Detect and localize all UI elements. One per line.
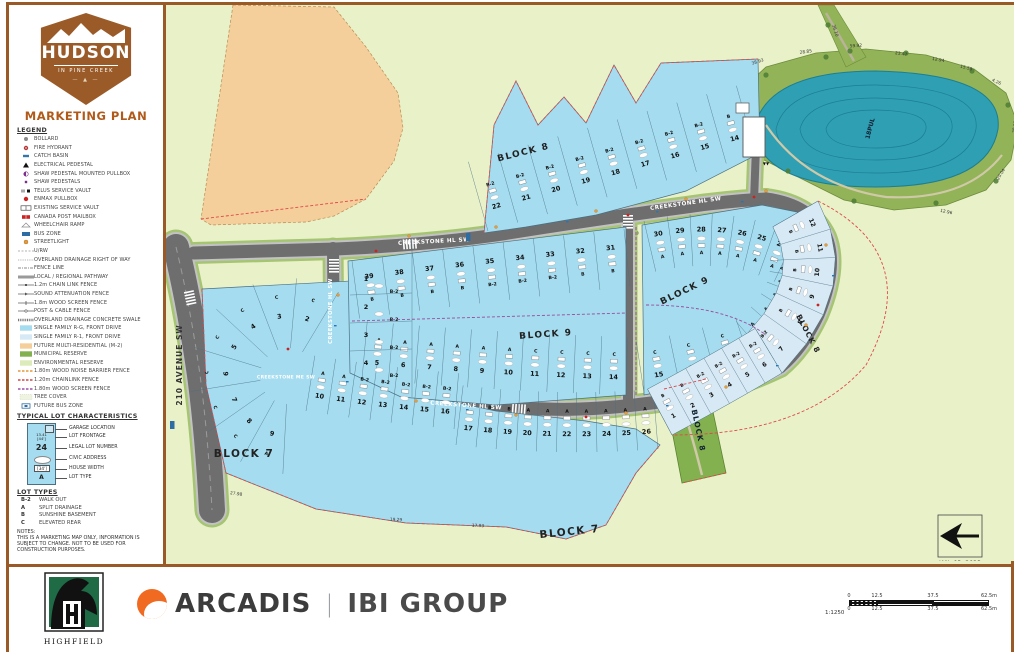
legend-item-label: LOCAL / REGIONAL PATHWAY	[34, 274, 108, 280]
legend-item: OVERLAND DRAINAGE CONCRETE SWALE	[17, 315, 163, 324]
catch-basin-icon	[18, 153, 34, 159]
typical-lot-diagram: 13.41 [44'] 24 [34'] A GARAGE LOCATIONLO…	[23, 422, 163, 486]
legend-item: BUS ZONE	[17, 230, 163, 239]
pathway-icon	[18, 274, 34, 280]
legend-item-label: EXISTING SERVICE VAULT	[34, 205, 99, 211]
typical-lot-heading: TYPICAL LOT CHARACTERISTICS	[17, 413, 163, 420]
svg-text:B-2: B-2	[443, 386, 452, 393]
scale-tick: 0	[847, 593, 850, 599]
legend-item: ELECTRICAL PEDESTAL	[17, 161, 163, 170]
brand-divider: |	[325, 590, 333, 618]
legend-item: CATCH BASIN	[17, 152, 163, 161]
telus-vault-icon	[18, 188, 34, 194]
typical-lot-callout: LOT FRONTAGE	[69, 434, 106, 439]
svg-text:B-2: B-2	[360, 376, 369, 383]
mountains-icon	[47, 21, 125, 43]
post-cable-fence-icon	[18, 308, 34, 314]
shaw-pullbox-icon	[18, 171, 34, 177]
lot-type-row: CELEVATED REAR	[21, 520, 163, 528]
legend-item: TELUS SERVICE VAULT	[17, 187, 163, 196]
streetlight-icon	[18, 239, 34, 245]
svg-text:23: 23	[582, 430, 591, 438]
footer-bar: HIGHFIELD ARCADIS | IBI GROUP 012.537.56…	[9, 564, 1011, 652]
legend-item-label: FIRE HYDRANT	[34, 145, 72, 151]
svg-text:A: A	[565, 409, 569, 415]
logo-title: HUDSON	[37, 43, 135, 63]
scale-tick: 62.5m	[981, 606, 997, 612]
legend-item: 1.2m CHAIN LINK FENCE	[17, 281, 163, 290]
svg-text:19: 19	[503, 427, 513, 436]
house-width-box: [34']	[34, 465, 50, 472]
legend-item-label: 1.80m WOOD NOISE BARRIER FENCE	[34, 368, 130, 374]
logo-est: — ▲ —	[37, 77, 135, 83]
svg-text:B-2: B-2	[422, 384, 431, 391]
svg-text:24: 24	[602, 430, 612, 438]
svg-text:16: 16	[440, 407, 450, 416]
highfield-logo: HIGHFIELD	[39, 571, 109, 647]
swatch-m2	[18, 343, 34, 349]
legend-item: TREE COVER	[17, 393, 163, 402]
svg-text:B-2: B-2	[518, 278, 527, 285]
legend-panel: HUDSON IN PINE CREEK — ▲ — MARKETING PLA…	[9, 5, 166, 564]
scale-tick: 37.5	[927, 593, 938, 599]
overland-drainage-icon	[18, 257, 34, 263]
legend-item: WHEELCHAIR RAMP	[17, 221, 163, 230]
fire-hydrant-icon	[18, 145, 34, 151]
svg-text:14: 14	[609, 373, 619, 381]
svg-text:13: 13	[378, 400, 388, 409]
legend-item-label: SHAW PEDESTALS	[34, 179, 80, 185]
legend-item: SINGLE FAMILY R-1, FRONT DRIVE	[17, 333, 163, 342]
typical-lot-callout: HOUSE WIDTH	[69, 466, 104, 471]
legend-item: OVERLAND DRAINAGE RIGHT OF WAY	[17, 255, 163, 264]
svg-text:7: 7	[427, 363, 432, 371]
svg-text:17.93: 17.93	[472, 523, 485, 529]
legend-item: ENMAX PULLBOX	[17, 195, 163, 204]
typical-lot-callout: LEGAL LOT NUMBER	[69, 445, 118, 450]
legend-item: SOUND ATTENUATION FENCE	[17, 290, 163, 299]
svg-text:210 AVENUE SW: 210 AVENUE SW	[175, 324, 184, 405]
legend-item-label: 1.8m WOOD SCREEN FENCE	[34, 300, 107, 306]
legend-item-label: TREE COVER	[34, 394, 67, 400]
legend-item: BOLLARD	[17, 135, 163, 144]
scale-tick: 0	[847, 606, 850, 612]
wood-screen-fence-icon	[18, 300, 34, 306]
ibi-group-logo: IBI GROUP	[347, 589, 508, 619]
svg-text:25: 25	[622, 429, 632, 437]
legend-item-label: TELUS SERVICE VAULT	[34, 188, 91, 194]
typical-lot-callout: LOT TYPE	[69, 475, 92, 480]
svg-text:10: 10	[504, 368, 514, 377]
logo-tagline: IN PINE CREEK	[54, 65, 118, 74]
scale-tick: 12.5	[871, 606, 882, 612]
legend-item-label: FUTURE MULTI-RESIDENTIAL (M-2)	[34, 343, 122, 349]
legend-item-label: ENVIRONMENTAL RESERVE	[34, 360, 103, 366]
legend-item-label: OVERLAND DRAINAGE CONCRETE SWALE	[34, 317, 141, 323]
wheelchair-ramp-icon	[18, 222, 34, 228]
arcadis-logo: ARCADIS	[175, 589, 311, 619]
wood-screen-180-icon	[18, 386, 34, 392]
noise-barrier-icon	[18, 368, 34, 374]
svg-text:35: 35	[485, 257, 495, 266]
svg-text:4: 4	[364, 359, 369, 367]
legend-item-label: FENCE LINE	[34, 265, 64, 271]
svg-text:A: A	[700, 250, 704, 256]
legend-item: POST & CABLE FENCE	[17, 307, 163, 316]
scale-ticks-bottom: 012.537.562.5m	[827, 606, 997, 613]
fence-line-icon	[18, 265, 34, 271]
enmax-pullbox-icon	[18, 196, 34, 202]
legend-item-label: WHEELCHAIR RAMP	[34, 222, 85, 228]
svg-text:27: 27	[717, 226, 727, 235]
svg-text:B-2: B-2	[381, 379, 390, 386]
chain-link-fence-icon	[18, 282, 34, 288]
arcadis-icon	[137, 589, 167, 619]
lot-number-sample: 24	[28, 443, 55, 452]
legend-item: SINGLE FAMILY R-G, FRONT DRIVE	[17, 324, 163, 333]
svg-text:13: 13	[582, 372, 591, 380]
svg-text:A: A	[585, 409, 589, 415]
legend-item-label: SINGLE FAMILY R-1, FRONT DRIVE	[34, 334, 121, 340]
legend-item-label: ENMAX PULLBOX	[34, 196, 78, 202]
svg-text:B-2: B-2	[390, 345, 399, 351]
svg-text:38: 38	[394, 268, 404, 277]
legend-item: FIRE HYDRANT	[17, 144, 163, 153]
legend-item-label: POST & CABLE FENCE	[34, 308, 90, 314]
lot-types-heading: LOT TYPES	[17, 489, 163, 496]
svg-text:11: 11	[530, 370, 540, 378]
legend-item-label: 1.20m CHAINLINK FENCE	[34, 377, 99, 383]
typical-lot-swatch: 13.41 [44'] 24 [34'] A	[27, 423, 56, 485]
scale-bar: 012.537.562.5m 1:1250 012.537.562.5m	[827, 593, 997, 613]
svg-text:36: 36	[455, 260, 465, 269]
bus-zone-icon	[18, 231, 34, 237]
svg-text:20: 20	[523, 429, 533, 437]
svg-text:CREEKSTONE ME SW: CREEKSTONE ME SW	[257, 375, 315, 381]
legend-item-label: U/RW	[34, 248, 48, 254]
site-plan-map: 18PUL22B-221B-220B-219B-218B-217B-216B-2…	[166, 5, 1014, 561]
legend-item-label: BUS ZONE	[34, 231, 61, 237]
hudson-logo: HUDSON IN PINE CREEK — ▲ —	[37, 13, 135, 105]
notes-heading: NOTES:	[17, 529, 35, 535]
legend-item-label: FUTURE BUS ZONE	[34, 403, 83, 409]
svg-text:12: 12	[357, 398, 367, 407]
svg-text:B-2: B-2	[390, 289, 399, 295]
chainlink-120-icon	[18, 377, 34, 383]
swatch-mr	[18, 351, 34, 357]
bollard-icon	[18, 136, 34, 142]
svg-text:17: 17	[463, 424, 473, 433]
future-bus-icon	[18, 403, 34, 409]
map-area: 18PUL22B-221B-220B-219B-218B-217B-216B-2…	[166, 5, 1011, 564]
tree-cover-icon	[18, 394, 34, 400]
svg-text:21: 21	[542, 430, 552, 438]
legend-item: 1.8m WOOD SCREEN FENCE	[17, 298, 163, 307]
legend-item: U/RW	[17, 247, 163, 256]
svg-text:10: 10	[314, 391, 325, 400]
svg-text:14: 14	[399, 403, 409, 412]
legend-item-label: BOLLARD	[34, 136, 58, 142]
legend-item: 1.80m WOOD SCREEN FENCE	[17, 384, 163, 393]
typical-lot-callout: GARAGE LOCATION	[69, 426, 115, 431]
legend-item: 1.20m CHAINLINK FENCE	[17, 376, 163, 385]
legend-item-label: OVERLAND DRAINAGE RIGHT OF WAY	[34, 257, 131, 263]
brand-row: ARCADIS | IBI GROUP	[137, 589, 508, 619]
svg-text:JAN. 03, 2023: JAN. 03, 2023	[938, 560, 981, 561]
scale-tick: 12.5	[871, 593, 882, 599]
concrete-swale-icon	[18, 317, 34, 323]
existing-vault-icon	[18, 205, 34, 211]
legend-item: FENCE LINE	[17, 264, 163, 273]
typical-lot-callout: CIVIC ADDRESS	[69, 456, 106, 461]
lot-type-sample: A	[28, 474, 55, 481]
legend-item-label: MUNICIPAL RESERVE	[34, 351, 87, 357]
svg-text:19.29: 19.29	[390, 517, 403, 523]
lot-types-list: B-2WALK OUTASPLIT DRAINAGEBSUNSHINE BASE…	[9, 497, 163, 527]
svg-text:B-2: B-2	[548, 274, 557, 281]
svg-text:29: 29	[675, 226, 685, 235]
legend-item: 1.80m WOOD NOISE BARRIER FENCE	[17, 367, 163, 376]
legend-item-label: ELECTRICAL PEDESTAL	[34, 162, 93, 168]
shaw-pedestal-icon	[18, 179, 34, 185]
legend-item-label: SOUND ATTENUATION FENCE	[34, 291, 109, 297]
svg-text:34: 34	[515, 253, 525, 262]
legend-item: MUNICIPAL RESERVE	[17, 350, 163, 359]
sound-fence-icon	[18, 291, 34, 297]
legend-item: FUTURE BUS ZONE	[17, 401, 163, 410]
legend-item-label: SINGLE FAMILY R-G, FRONT DRIVE	[34, 325, 122, 331]
legend-item-label: 1.80m WOOD SCREEN FENCE	[34, 386, 110, 392]
svg-text:10: 10	[814, 268, 822, 277]
legend-item: EXISTING SERVICE VAULT	[17, 204, 163, 213]
svg-text:28: 28	[697, 225, 707, 233]
legend-item-label: SHAW PEDESTAL MOUNTED PULLBOX	[34, 171, 130, 177]
notes-text: THIS IS A MARKETING MAP ONLY, INFORMATIO…	[17, 535, 140, 553]
scale-tick: 37.5	[927, 606, 938, 612]
urw-line-icon	[18, 248, 34, 254]
lot-type-row: ASPLIT DRAINAGE	[21, 505, 163, 513]
svg-text:CREEKSTONE HL SW: CREEKSTONE HL SW	[328, 278, 334, 344]
legend-item-label: CANADA POST MAILBOX	[34, 214, 96, 220]
legend-item: FUTURE MULTI-RESIDENTIAL (M-2)	[17, 341, 163, 350]
svg-text:12: 12	[556, 371, 565, 379]
svg-text:BLOCK 7: BLOCK 7	[214, 448, 275, 460]
svg-text:59.92: 59.92	[850, 43, 863, 50]
legend-item: SHAW PEDESTAL MOUNTED PULLBOX	[17, 169, 163, 178]
legend-item-label: CATCH BASIN	[34, 153, 68, 159]
svg-text:2: 2	[364, 303, 369, 311]
svg-text:31: 31	[606, 243, 616, 252]
legend-item: SHAW PEDESTALS	[17, 178, 163, 187]
svg-text:33: 33	[545, 250, 555, 259]
svg-text:22: 22	[562, 430, 571, 438]
svg-text:11: 11	[815, 243, 823, 253]
legend-heading: LEGEND	[17, 127, 163, 134]
swatch-r1	[18, 334, 34, 340]
svg-text:37: 37	[424, 264, 434, 273]
swatch-rg	[18, 325, 34, 331]
svg-text:B-2: B-2	[401, 382, 410, 389]
plan-title: MARKETING PLAN	[9, 109, 163, 123]
legend-item: ENVIRONMENTAL RESERVE	[17, 358, 163, 367]
svg-text:A: A	[546, 408, 550, 414]
svg-text:1: 1	[364, 275, 369, 283]
legend-item: STREETLIGHT	[17, 238, 163, 247]
legend-item-label: STREETLIGHT	[34, 239, 69, 245]
swatch-er	[18, 360, 34, 366]
legend-item: LOCAL / REGIONAL PATHWAY	[17, 273, 163, 282]
notes: NOTES: THIS IS A MARKETING MAP ONLY, INF…	[17, 529, 157, 554]
svg-text:B-2: B-2	[488, 281, 497, 288]
electrical-pedestal-icon	[18, 162, 34, 168]
svg-text:B-2: B-2	[390, 373, 399, 379]
scale-ticks-top: 012.537.562.5m	[827, 593, 997, 600]
lot-type-row: BSUNSHINE BASEMENT	[21, 512, 163, 520]
svg-text:26: 26	[642, 427, 652, 436]
svg-text:HIGHFIELD: HIGHFIELD	[44, 637, 104, 646]
plan-sheet: HUDSON IN PINE CREEK — ▲ — MARKETING PLA…	[6, 2, 1014, 652]
svg-text:A: A	[604, 408, 608, 414]
lot-type-row: B-2WALK OUT	[21, 497, 163, 505]
legend-items: BOLLARDFIRE HYDRANTCATCH BASINELECTRICAL…	[9, 135, 163, 410]
civic-address-oval	[34, 456, 51, 464]
svg-text:15: 15	[420, 405, 430, 414]
frontage-ft: [44']	[28, 436, 55, 441]
scale-tick: 62.5m	[981, 593, 997, 599]
legend-item: CANADA POST MAILBOX	[17, 212, 163, 221]
svg-text:▼▼: ▼▼	[763, 161, 770, 166]
legend-item-label: 1.2m CHAIN LINK FENCE	[34, 282, 97, 288]
canada-post-icon	[18, 214, 34, 220]
svg-text:11: 11	[336, 395, 347, 404]
svg-text:32: 32	[575, 247, 585, 256]
svg-text:3: 3	[364, 331, 369, 339]
svg-text:18: 18	[483, 426, 493, 435]
